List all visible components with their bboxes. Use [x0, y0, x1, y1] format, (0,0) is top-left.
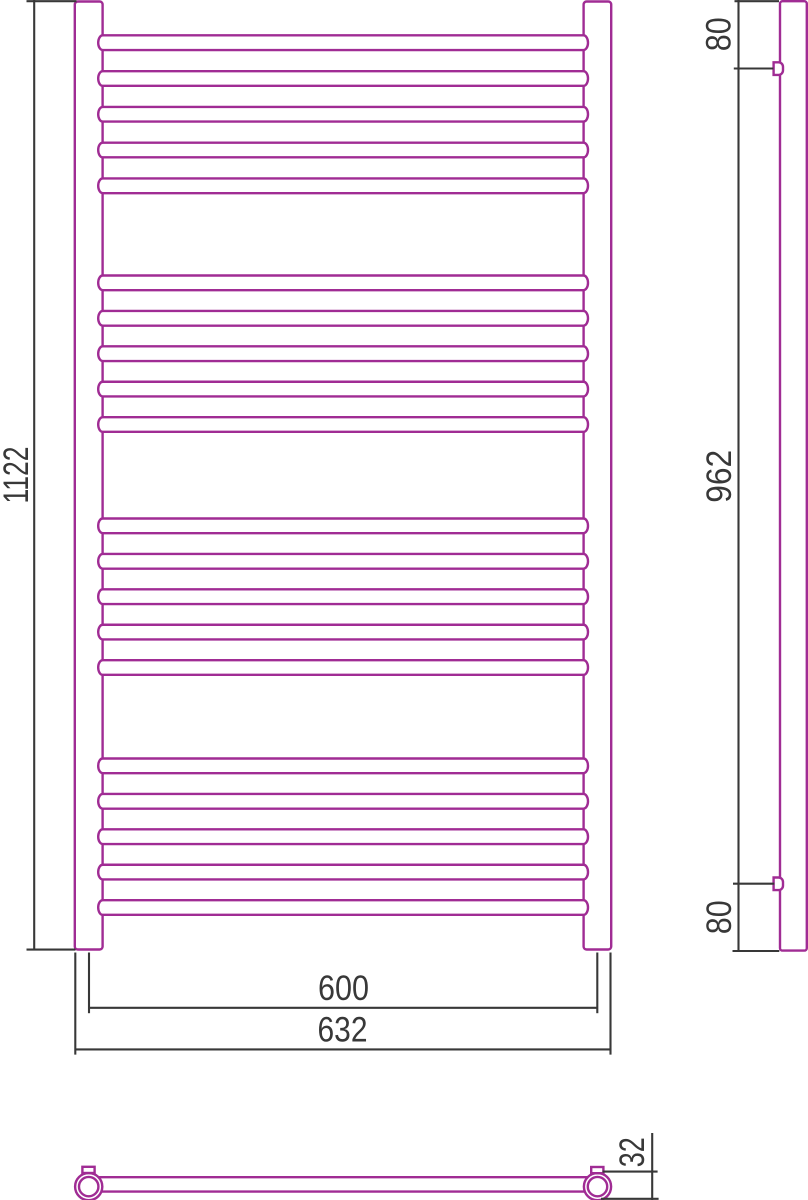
svg-text:32: 32 — [613, 1137, 652, 1167]
svg-text:80: 80 — [700, 900, 739, 934]
svg-text:600: 600 — [318, 969, 369, 1008]
svg-text:962: 962 — [700, 450, 739, 503]
svg-text:1122: 1122 — [0, 447, 36, 504]
svg-text:632: 632 — [318, 1011, 368, 1050]
svg-text:80: 80 — [700, 17, 739, 51]
